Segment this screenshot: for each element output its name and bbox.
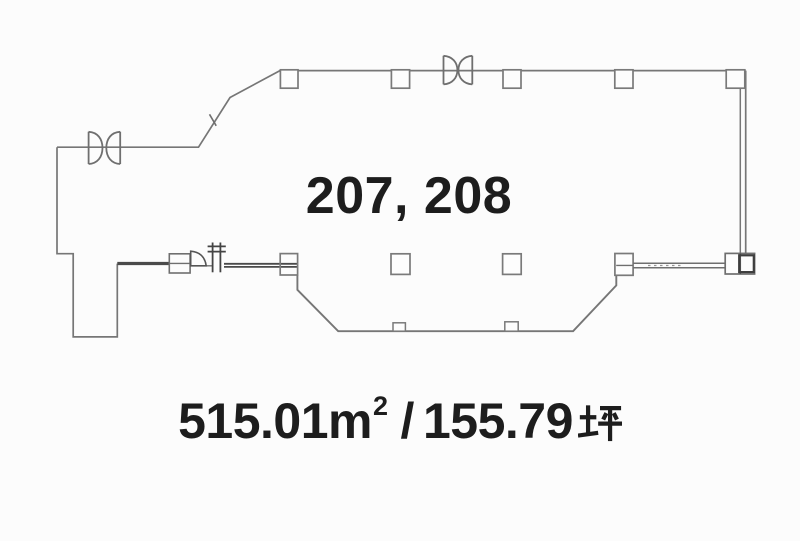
column bbox=[503, 70, 521, 88]
column bbox=[726, 70, 745, 88]
wall-pilaster bbox=[393, 323, 405, 331]
area-sqm-value: 515.01 bbox=[178, 396, 328, 446]
floor-plan: 207, 208 515.01m2/155.79 坪 bbox=[0, 0, 800, 541]
column bbox=[391, 70, 409, 88]
area-sqm-unit: m bbox=[328, 396, 372, 446]
area-tsubo-value: 155.79 bbox=[423, 396, 573, 446]
entrance-walls bbox=[117, 264, 297, 267]
area-separator: / bbox=[388, 396, 423, 446]
wall-pilasters bbox=[393, 322, 518, 331]
wall-pilaster bbox=[505, 322, 518, 331]
perimeter-columns bbox=[280, 70, 744, 88]
interior-columns bbox=[280, 254, 633, 276]
area-sqm-exponent: 2 bbox=[373, 393, 388, 420]
swing-door-icon bbox=[169, 251, 206, 273]
tsubo-kanji-icon bbox=[578, 397, 622, 443]
floor-plan-drawing bbox=[0, 0, 800, 541]
unit-numbers-label: 207, 208 bbox=[0, 170, 800, 222]
column bbox=[615, 70, 633, 88]
shaft-hatch-icon bbox=[208, 243, 226, 273]
column bbox=[503, 254, 522, 275]
lower-bay-outline bbox=[297, 275, 616, 331]
corner-column bbox=[725, 253, 754, 274]
column bbox=[615, 254, 633, 276]
area-label: 515.01m2/155.79 坪 bbox=[0, 396, 800, 446]
column bbox=[391, 254, 410, 275]
column bbox=[280, 70, 298, 88]
